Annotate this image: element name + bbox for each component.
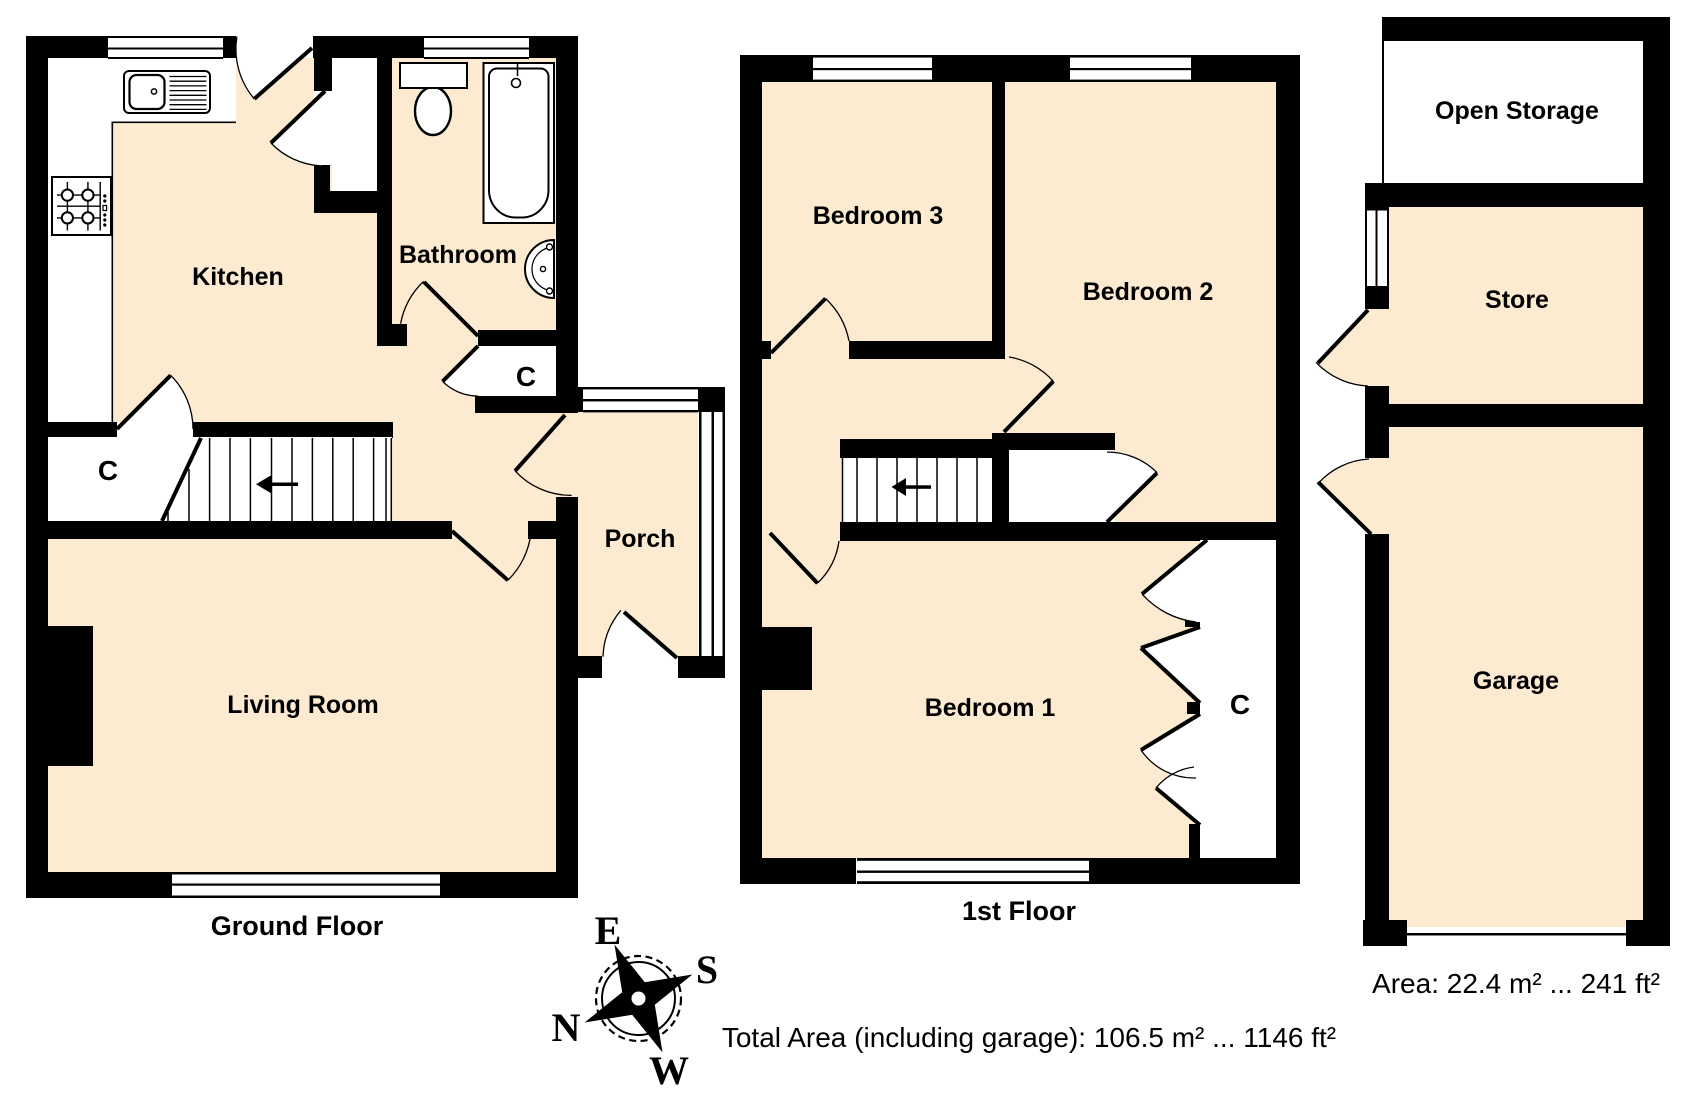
svg-text:Open Storage: Open Storage: [1435, 97, 1599, 125]
svg-text:Kitchen: Kitchen: [192, 263, 284, 291]
svg-text:Porch: Porch: [605, 525, 676, 553]
svg-text:Total Area (including garage):: Total Area (including garage): 106.5 m² …: [722, 1022, 1336, 1053]
svg-text:C: C: [516, 361, 536, 392]
svg-text:N: N: [552, 1005, 581, 1050]
svg-text:Ground Floor: Ground Floor: [211, 911, 384, 941]
svg-text:Bedroom 2: Bedroom 2: [1083, 278, 1214, 306]
svg-text:C: C: [1230, 689, 1250, 720]
svg-text:Bedroom 1: Bedroom 1: [925, 694, 1056, 722]
svg-text:Store: Store: [1485, 286, 1549, 314]
svg-text:W: W: [649, 1048, 689, 1093]
svg-text:Bathroom: Bathroom: [399, 241, 517, 269]
svg-text:Bedroom 3: Bedroom 3: [813, 202, 944, 230]
svg-text:Living Room: Living Room: [227, 691, 378, 719]
svg-text:E: E: [595, 908, 622, 953]
svg-text:C: C: [98, 455, 118, 486]
svg-text:Garage: Garage: [1473, 667, 1559, 695]
svg-text:Area: 22.4 m² ... 241 ft²: Area: 22.4 m² ... 241 ft²: [1372, 968, 1660, 999]
svg-text:1st Floor: 1st Floor: [962, 896, 1077, 926]
svg-text:S: S: [696, 947, 718, 992]
